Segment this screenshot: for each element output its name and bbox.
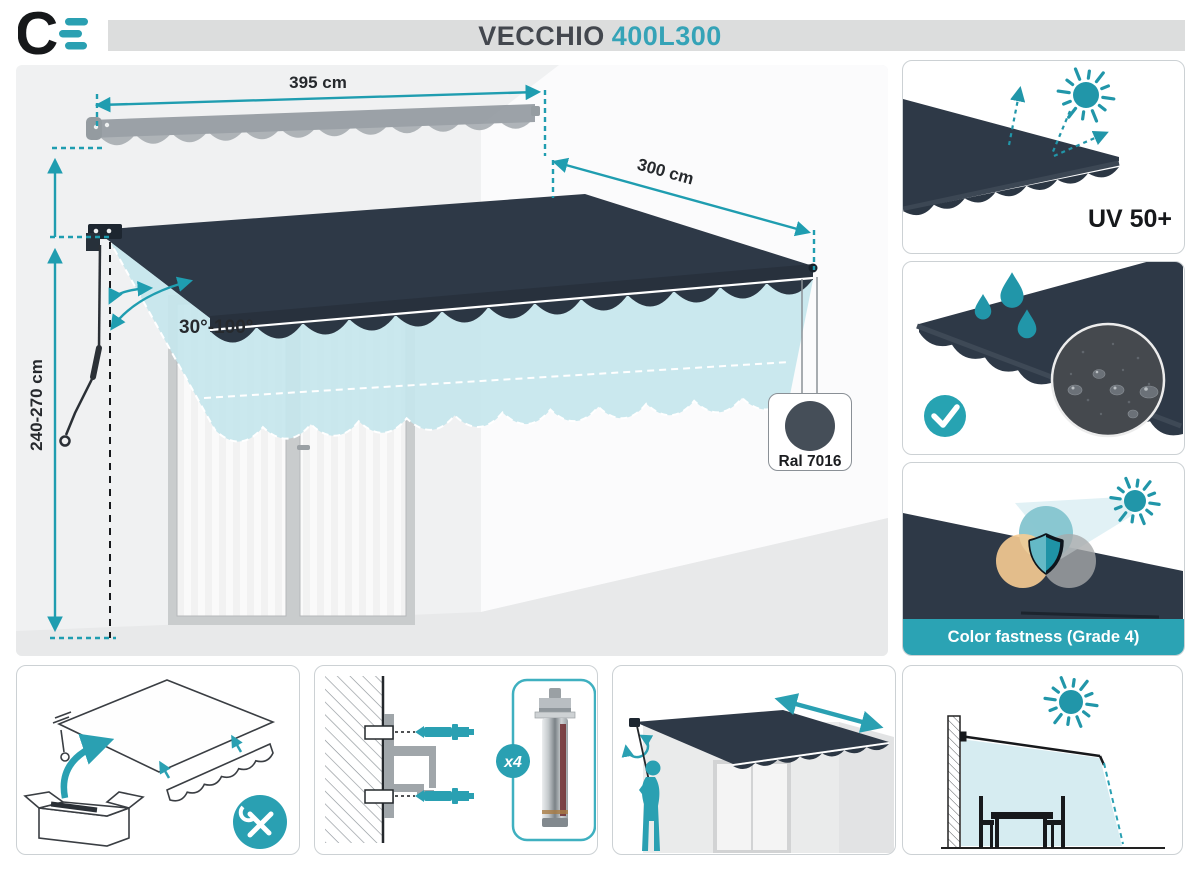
quantity-label: x4 [503, 754, 522, 771]
shade-diagram-panel [902, 665, 1183, 855]
door-handle [297, 445, 310, 450]
dim-height [50, 148, 116, 638]
anchor-slot [365, 790, 393, 803]
box-icon [25, 792, 143, 846]
ral-swatch-icon [785, 401, 835, 451]
door-graphic [713, 760, 791, 853]
awning-dimension-illustration: 395 cm 300 cm 240-270 cm [16, 65, 888, 656]
fabric-macro-circle [1052, 324, 1164, 436]
tools-icon [233, 795, 287, 849]
main-diagram-panel: 395 cm 300 cm 240-270 cm [16, 65, 888, 656]
wall-hatch-graphic [325, 676, 383, 843]
water-resistance-panel [902, 261, 1185, 455]
unboxing-panel [16, 665, 300, 855]
curved-arrow-icon [64, 742, 105, 798]
color-fastness-panel: Color fastness (Grade 4) [902, 462, 1185, 656]
ral-label: Ral 7016 [769, 453, 851, 471]
ral-color-tag: Ral 7016 [768, 393, 852, 471]
product-name: VECCHIO [478, 21, 605, 51]
quantity-badge: x4 [496, 744, 530, 778]
angle-label: 30°-100° [179, 317, 253, 338]
check-icon [924, 395, 966, 437]
infographic-page: C VECCHIO400L300 [0, 0, 1200, 870]
folded-awning-ghost [86, 104, 540, 145]
sun-icon [1058, 69, 1114, 121]
page-title: VECCHIO400L300 [0, 21, 1200, 52]
awning-corner-graphic [903, 99, 1119, 215]
uv-label: UV 50+ [1088, 205, 1172, 233]
product-model: 400L300 [612, 21, 722, 51]
crank-handle-icon [61, 245, 101, 446]
uv-protection-panel: UV 50+ [902, 60, 1185, 254]
anchor-bolt-icon [395, 724, 474, 740]
colorfast-caption: Color fastness (Grade 4) [903, 619, 1184, 655]
crank-operation-panel [612, 665, 896, 855]
wall-section [948, 716, 960, 848]
sun-icon [1045, 678, 1097, 727]
mounting-panel: x4 [314, 665, 598, 855]
anchor-slot [365, 726, 393, 739]
dim-width-label: 395 cm [289, 73, 347, 92]
dim-height-label: 240-270 cm [27, 359, 46, 451]
